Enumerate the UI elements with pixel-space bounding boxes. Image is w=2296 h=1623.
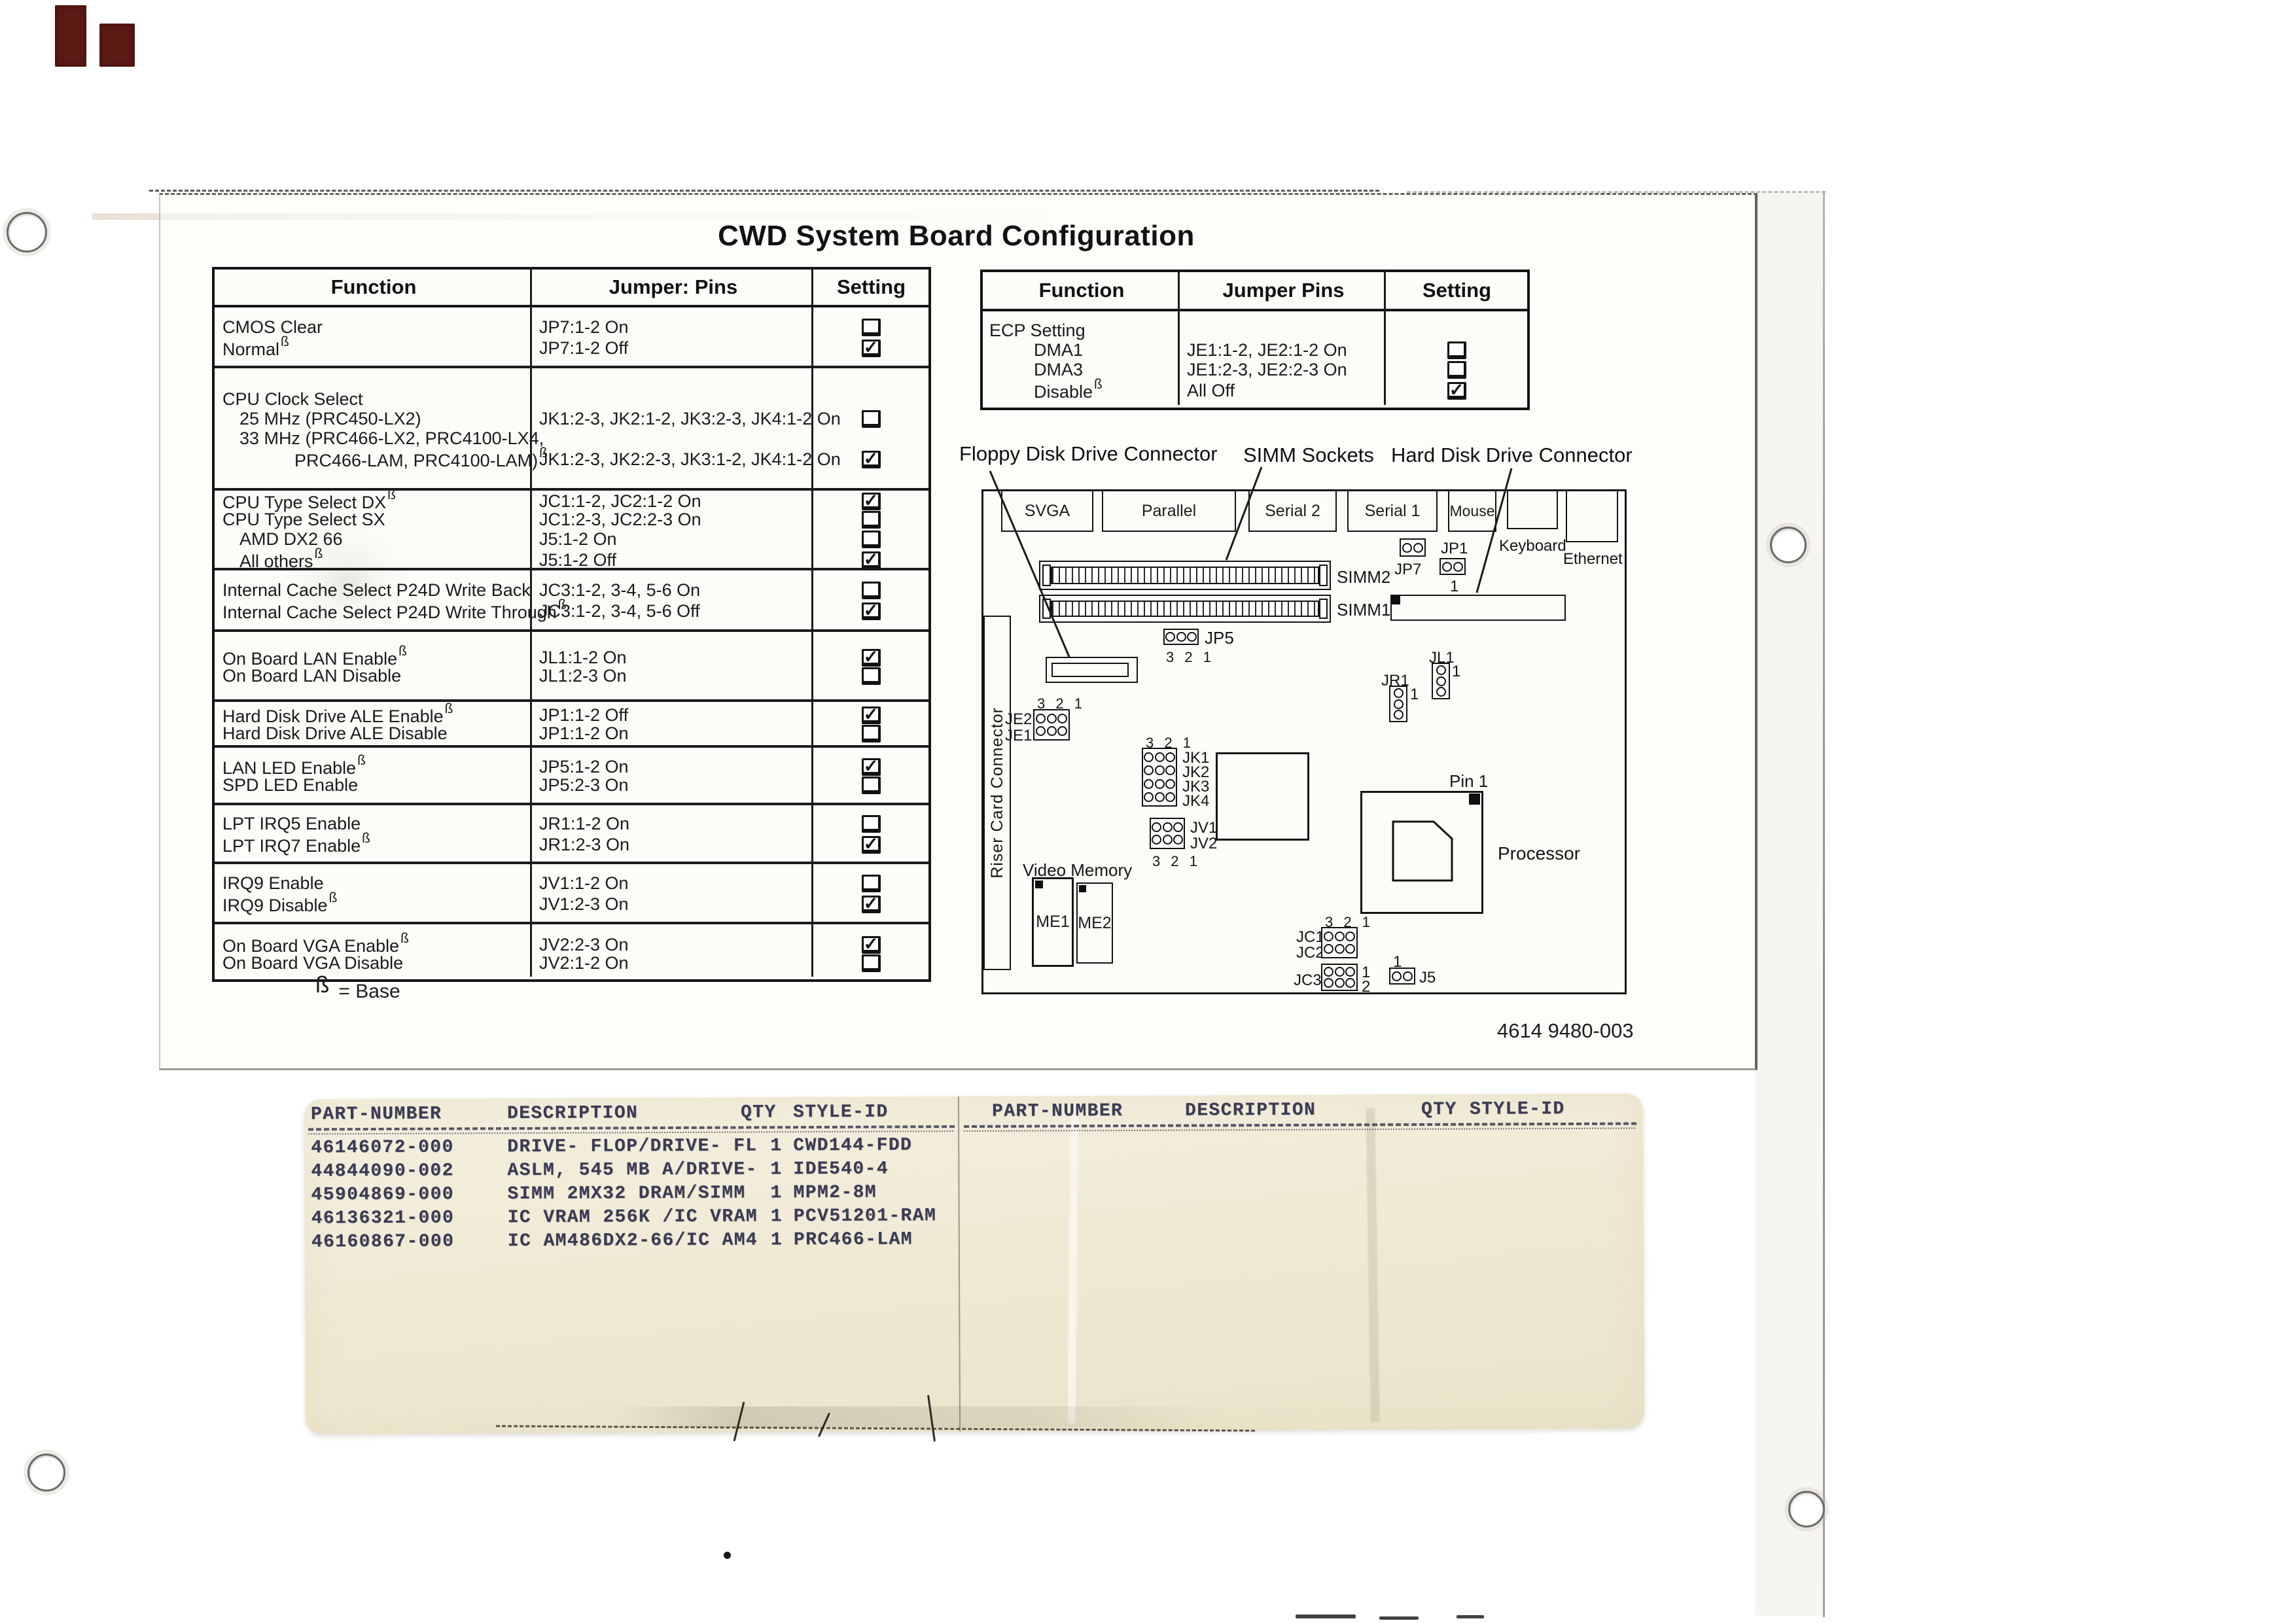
punch-hole (27, 1454, 65, 1492)
table-section: LPT IRQ5 EnableJR1:1-2 OnLPT IRQ7 Enable… (215, 805, 928, 864)
jumper-pins-value: JP5:2-3 On (533, 775, 814, 795)
header-qty: QTY (741, 1102, 777, 1123)
setting-cell: ✓ (814, 936, 928, 954)
setting-checkbox: ✓ (862, 707, 881, 724)
header-style-id: STYLE-ID (793, 1102, 889, 1123)
base-superscript: ß (400, 931, 409, 946)
jumper-pin (1345, 967, 1355, 977)
jumper-pins-value: JP1:1-2 On (533, 724, 814, 744)
jumper-table-main: Function Jumper: Pins Setting CMOS Clear… (212, 267, 931, 982)
base-superscript: ß (281, 334, 289, 349)
riser-card-connector-label: Riser Card Connector (988, 707, 1007, 879)
function-label: Disableß (983, 379, 1180, 402)
function-label: 33 MHz (PRC466-LX2, PRC4100-LX4, (215, 428, 533, 449)
table-section: CPU Type Select DXßJC1:1-2, JC2:1-2 On✓C… (215, 491, 928, 570)
jumper-pin (1152, 822, 1161, 832)
jumper-pin-row (1143, 779, 1176, 789)
function-label: LPT IRQ5 Enable (215, 814, 533, 834)
function-label: DMA3 (983, 360, 1180, 380)
setting-checkbox: ✓ (862, 451, 881, 468)
jumper-pin-row (1401, 543, 1424, 553)
table-section: LAN LED EnableßJP5:1-2 On✓SPD LED Enable… (215, 748, 928, 805)
punch-hole (7, 212, 47, 253)
system-board-diagram: SVGA Parallel Serial 2 Serial 1 Mouse Ke… (981, 489, 1627, 994)
setting-checkbox: ✓ (862, 551, 881, 569)
base-superscript: ß (387, 491, 396, 502)
punch-hole (1770, 527, 1807, 563)
style-id: IDE540-4 (793, 1159, 889, 1180)
description: DRIVE- FLOP/DRIVE- FL (507, 1136, 757, 1157)
sticker-wrinkle (1366, 1108, 1379, 1422)
jumper-pin-row (1151, 835, 1184, 845)
jumper-pins-value: J5:1-2 On (533, 529, 814, 550)
jumper-pin-row (1165, 632, 1197, 642)
jumper-pin (1436, 676, 1446, 686)
jumper-pin-row (1433, 676, 1449, 686)
table-section: ECP SettingDMA1JE1:1-2, JE2:1-2 OnDMA3JE… (983, 311, 1527, 408)
jumper-pins-value: JP7:1-2 Off (533, 338, 814, 358)
table-line: On Board VGA EnableßJV2:2-3 On✓ (215, 934, 928, 953)
sheet-right-strip (1755, 193, 1823, 1616)
setting-checkbox (1447, 361, 1466, 379)
jumper-pins-value: JC3:1-2, 3-4, 5-6 Off (533, 601, 814, 621)
port-keyboard-label: Keyboard (1499, 537, 1566, 555)
jumper-je1-label: JE1 (1005, 727, 1032, 745)
jumper-table-ecp: Function Jumper Pins Setting ECP Setting… (980, 270, 1530, 410)
table-section: CMOS ClearJP7:1-2 OnNormalßJP7:1-2 Off✓ (215, 307, 928, 368)
jumper-pin-row (1143, 792, 1176, 802)
riser-card-connector: Riser Card Connector (983, 616, 1011, 970)
parts-table-row: 44844090-002ASLM, 545 MB A/DRIVE-1IDE540… (311, 1159, 965, 1182)
table-line: On Board VGA DisableJV2:1-2 On (215, 953, 928, 973)
base-superscript: ß (398, 644, 407, 659)
base-superscript: ß (357, 753, 366, 768)
setting-checkbox (862, 815, 881, 833)
table-section: Internal Cache Select P24D Write BackJC3… (215, 570, 928, 632)
setting-checkbox: ✓ (862, 836, 881, 854)
jumper-pin (1036, 714, 1046, 724)
style-id: CWD144-FDD (793, 1135, 912, 1156)
setting-checkbox (862, 875, 881, 892)
jumper-pin (1324, 944, 1333, 954)
jumper-pin (1155, 765, 1165, 775)
function-label: Normalß (215, 337, 533, 360)
jumper-jk-block (1142, 748, 1177, 807)
parts-table-row: 45904869-000SIMM 2MX32 DRAM/SIMM1MPM2-8M (311, 1182, 965, 1206)
table-line: 25 MHz (PRC450-LX2)JK1:2-3, JK2:1-2, JK3… (215, 409, 928, 428)
jumper-pin (1036, 726, 1046, 736)
column-divider (530, 267, 532, 977)
me1-pin1-mark (1035, 881, 1043, 888)
floppy-connector-inner (1051, 663, 1129, 677)
port-ethernet-label: Ethernet (1563, 550, 1623, 568)
jc3-pin2: 2 (1362, 978, 1370, 996)
jumper-pin (1413, 543, 1423, 553)
qty: 1 (770, 1183, 782, 1203)
jumper-jp1 (1439, 558, 1466, 575)
table-body: ECP SettingDMA1JE1:1-2, JE2:1-2 OnDMA3JE… (983, 311, 1527, 408)
jumper-pin (1057, 726, 1067, 736)
jumper-j5-label: J5 (1419, 969, 1436, 987)
jumper-pin (1345, 944, 1355, 954)
base-superscript: ß (445, 702, 453, 716)
jumper-pin (1324, 932, 1333, 941)
jumper-jk4-label: JK4 (1182, 792, 1209, 811)
setting-cell (814, 815, 928, 833)
jumper-pin-row (1390, 688, 1406, 698)
function-label: Internal Cache Select P24D Write Through… (215, 600, 533, 623)
description: IC VRAM 256K /IC VRAM (508, 1206, 758, 1228)
part-number: 45904869-000 (311, 1184, 454, 1205)
legend-base-note: ß= Base (315, 977, 400, 1003)
jumper-pin (1442, 562, 1452, 572)
setting-checkbox: ✓ (1447, 382, 1466, 400)
jumper-jl1 (1432, 663, 1450, 699)
table-line: CMOS ClearJP7:1-2 On (215, 317, 928, 337)
legend-symbol: ß (315, 972, 329, 998)
setting-checkbox (1447, 341, 1466, 359)
port-parallel: Parallel (1102, 490, 1236, 532)
setting-cell (1386, 361, 1527, 379)
jumper-pins-value: JV1:1-2 On (533, 873, 814, 894)
qty: 1 (771, 1206, 783, 1227)
function-label: LPT IRQ7 Enableß (215, 833, 533, 856)
setting-checkbox: ✓ (862, 936, 881, 954)
jumper-pin (1324, 967, 1333, 977)
table-line: Hard Disk Drive ALE DisableJP1:1-2 On (215, 724, 928, 743)
jumper-j5 (1389, 968, 1415, 985)
header-rule (308, 1125, 955, 1130)
jp5-pin-numbers: 3 2 1 (1166, 649, 1214, 666)
sheet-top-edge (149, 190, 1379, 192)
function-label: All othersß (215, 549, 533, 570)
style-id: PRC466-LAM (794, 1229, 913, 1250)
me2-pin1-mark (1079, 885, 1086, 892)
function-label: IRQ9 Enable (215, 873, 533, 894)
jumper-pin-row (1322, 978, 1356, 988)
setting-checkbox: ✓ (862, 493, 881, 510)
jumper-pins-value: JC1:1-2, JC2:1-2 On (533, 491, 814, 512)
jumper-pin (1335, 932, 1345, 941)
port-serial2: Serial 2 (1248, 490, 1337, 532)
qty: 1 (770, 1159, 782, 1179)
callout-simm-sockets: SIMM Sockets (1243, 444, 1374, 467)
jumper-pin-row (1322, 967, 1356, 977)
col-header-setting: Setting (1386, 279, 1527, 302)
scan-edge-mark (1296, 1614, 1356, 1618)
table-section: IRQ9 EnableJV1:1-2 OnIRQ9 DisableßJV1:2-… (215, 864, 928, 924)
hdd-connector (1390, 595, 1566, 621)
jumper-pins-value: JL1:2-3 On (533, 666, 814, 686)
jumper-pin-row (1034, 714, 1069, 724)
jumper-pin (1152, 835, 1161, 845)
table-line: IRQ9 DisableßJV1:2-3 On✓ (215, 893, 928, 913)
jumper-pin-row (1441, 562, 1464, 572)
jumper-pin (1163, 822, 1173, 832)
jumper-pin-row (1433, 665, 1449, 675)
jumper-je2-label: JE2 (1005, 710, 1032, 729)
jumper-jp5 (1163, 629, 1199, 645)
slot-contacts (1051, 567, 1319, 584)
table-line: 33 MHz (PRC466-LX2, PRC4100-LX4, (215, 428, 928, 448)
setting-cell (814, 582, 928, 599)
jumper-pin (1187, 632, 1197, 642)
col-header-jumper-pins: Jumper Pins (1180, 279, 1386, 302)
slot-end-cap (1042, 599, 1051, 619)
base-superscript: ß (362, 831, 370, 846)
table-line: CPU Type Select SXJC1:2-3, JC2:2-3 On (215, 510, 928, 529)
parts-label-sticker: PART-NUMBER DESCRIPTION QTY STYLE-ID PAR… (304, 1094, 1644, 1435)
jumper-pin (1155, 752, 1165, 762)
setting-cell (814, 410, 928, 428)
jumper-pin (1165, 632, 1175, 642)
callout-hdd-connector: Hard Disk Drive Connector (1391, 444, 1633, 467)
scan-edge-mark (1457, 1615, 1484, 1618)
punch-hole (1788, 1491, 1825, 1527)
hdd-pin1-mark (1392, 596, 1400, 604)
jumper-jl1-pin1: 1 (1452, 663, 1460, 681)
part-number: 46146072-000 (311, 1137, 454, 1158)
jumper-pin (1155, 792, 1165, 802)
simm2-label: SIMM2 (1337, 567, 1390, 587)
simm1-label: SIMM1 (1337, 600, 1390, 620)
jumper-pins-value: JE1:2-3, JE2:2-3 On (1180, 360, 1386, 380)
table-line: On Board LAN EnableßJL1:1-2 On✓ (215, 646, 928, 666)
jumper-pins-value: JK1:2-3, JK2:1-2, JK3:2-3, JK4:1-2 On (533, 409, 814, 429)
jumper-pin (1163, 835, 1173, 845)
jumper-pin-row (1433, 687, 1449, 697)
jv-pin-numbers: 3 2 1 (1152, 853, 1201, 870)
jumper-pin (1057, 714, 1067, 724)
col-header-function: Function (215, 275, 533, 299)
jumper-pin-row (1151, 822, 1184, 832)
base-superscript: ß (539, 445, 548, 461)
scan-speck (724, 1552, 731, 1559)
jumper-pin (1144, 752, 1154, 762)
jumper-pin (1335, 967, 1345, 977)
jumper-pin (1165, 779, 1175, 789)
setting-cell (814, 954, 928, 972)
scan-red-mark (99, 24, 135, 67)
jumper-pin (1335, 944, 1345, 954)
parts-table-row: 46136321-000IC VRAM 256K /IC VRAM1PCV512… (311, 1206, 966, 1229)
table-line: DMA1JE1:1-2, JE2:1-2 On (983, 340, 1527, 360)
jumper-pin (1165, 765, 1175, 775)
function-label: CPU Type Select SX (215, 510, 533, 530)
jumper-pin (1394, 710, 1404, 720)
setting-cell: ✓ (814, 451, 928, 468)
jumper-pin (1176, 632, 1186, 642)
base-superscript: ß (329, 890, 338, 905)
table-line: DisableßAll Off✓ (983, 379, 1527, 399)
setting-cell: ✓ (814, 602, 928, 620)
function-label: ECP Setting (983, 321, 1180, 341)
jumper-pin-row (1143, 765, 1176, 775)
jumper-jv2-label: JV2 (1190, 835, 1217, 853)
jumper-pin-row (1322, 944, 1356, 954)
jumper-pin (1335, 978, 1345, 988)
jumper-pins-value: JR1:1-2 On (533, 814, 814, 834)
jumper-jp1-label: JP1 (1441, 540, 1468, 558)
jumper-pin (1436, 687, 1446, 697)
style-id: PCV51201-RAM (794, 1206, 937, 1227)
base-superscript: ß (558, 597, 567, 612)
part-number: 44844090-002 (311, 1161, 454, 1181)
jumper-pin (1144, 792, 1154, 802)
jumper-pins-value: JL1:1-2 On (533, 648, 814, 668)
table-line: LPT IRQ7 EnableßJR1:2-3 On✓ (215, 833, 928, 853)
table-line: Internal Cache Select P24D Write BackJC3… (215, 580, 928, 600)
setting-checkbox: ✓ (862, 602, 881, 620)
slot-end-cap (1319, 599, 1328, 619)
parts-table-row: 46160867-000IC AM486DX2-66/IC AM41PRC466… (311, 1229, 966, 1253)
function-label: On Board VGA Disable (215, 953, 533, 973)
table-line: LPT IRQ5 EnableJR1:1-2 On (215, 814, 928, 833)
table-body: CMOS ClearJP7:1-2 OnNormalßJP7:1-2 Off✓C… (215, 307, 928, 982)
base-superscript: ß (315, 546, 323, 561)
chip-unlabeled (1216, 752, 1309, 841)
table-line: LAN LED EnableßJP5:1-2 On✓ (215, 756, 928, 775)
processor-pin1-label: Pin 1 (1449, 771, 1488, 792)
description: IC AM486DX2-66/IC AM4 (508, 1230, 758, 1251)
function-label: SPD LED Enable (215, 775, 533, 795)
jumper-pins-value: JC3:1-2, 3-4, 5-6 On (533, 580, 814, 601)
description: ASLM, 545 MB A/DRIVE- (507, 1159, 757, 1181)
jumper-pins-value: JP7:1-2 On (533, 317, 814, 338)
jumper-jc3-label: JC3 (1294, 971, 1322, 990)
setting-cell: ✓ (814, 551, 928, 569)
jumper-pin-row (1390, 710, 1406, 720)
description: SIMM 2MX32 DRAM/SIMM (507, 1183, 745, 1205)
setting-checkbox (862, 410, 881, 428)
jumper-pins-value: All Off (1180, 381, 1386, 401)
legend-text: = Base (338, 981, 400, 1002)
column-divider (1178, 270, 1180, 405)
table-section: On Board LAN EnableßJL1:1-2 On✓On Board … (215, 632, 928, 702)
jumper-pin (1345, 932, 1355, 941)
jumper-pins-value: JV2:2-3 On (533, 935, 814, 955)
jumper-jc3 (1321, 964, 1358, 991)
jumper-pin-row (1322, 932, 1356, 941)
setting-cell: ✓ (1386, 382, 1527, 400)
header-rule (964, 1123, 1636, 1128)
port-keyboard-box (1507, 490, 1558, 529)
jumper-pin (1173, 822, 1183, 832)
jumper-pin (1165, 752, 1175, 762)
parts-rows: 46146072-000DRIVE- FLOP/DRIVE- FL1CWD144… (304, 1094, 1643, 1100)
jumper-pin (1453, 562, 1463, 572)
table-line: CPU Type Select DXßJC1:1-2, JC2:1-2 On✓ (215, 491, 928, 510)
header-style-id: STYLE-ID (1470, 1099, 1565, 1120)
vram-chip-me1: ME1 (1032, 877, 1074, 967)
setting-cell (814, 875, 928, 892)
jumper-jp7 (1400, 538, 1426, 557)
function-label: CPU Clock Select (215, 389, 533, 410)
setting-cell (814, 667, 928, 685)
function-label: PRC466-LAM, PRC4100-LAM)ß (215, 448, 533, 471)
part-number: 46160867-000 (311, 1231, 455, 1252)
column-divider (811, 267, 813, 977)
jumper-jp5-label: JP5 (1205, 628, 1234, 648)
table-line: All othersßJ5:1-2 Off✓ (215, 549, 928, 568)
sticker-wrinkle (1670, 1100, 1678, 1420)
function-label: DMA1 (983, 340, 1180, 360)
qty: 1 (771, 1230, 783, 1250)
jumper-pin (1403, 971, 1413, 981)
header-description: DESCRIPTION (507, 1103, 638, 1124)
simm2-slot (1039, 561, 1331, 590)
table-line: ECP Setting (983, 321, 1527, 340)
jumper-pins-value: JV1:2-3 On (533, 894, 814, 915)
setting-checkbox (862, 582, 881, 599)
jumper-jc2-label: JC2 (1296, 944, 1324, 962)
table-header-row: Function Jumper: Pins Setting (215, 270, 928, 307)
function-label: 25 MHz (PRC450-LX2) (215, 409, 533, 429)
scan-edge-mark (1379, 1616, 1419, 1620)
setting-cell (814, 319, 928, 336)
function-label: On Board LAN Disable (215, 666, 533, 686)
jumper-pins-value: JR1:2-3 On (533, 835, 814, 855)
col-header-jumper-pins: Jumper: Pins (533, 275, 814, 299)
slot-end-cap (1042, 565, 1051, 586)
jumper-pin-row (1143, 752, 1176, 762)
header-description: DESCRIPTION (1185, 1100, 1316, 1121)
jumper-pin (1165, 792, 1175, 802)
table-line: IRQ9 EnableJV1:1-2 On (215, 873, 928, 893)
vram-chip-me2: ME2 (1076, 882, 1113, 964)
header-part-number: PART-NUMBER (311, 1104, 442, 1125)
port-svga: SVGA (1001, 490, 1093, 532)
jumper-pin (1144, 765, 1154, 775)
table-line: SPD LED EnableJP5:2-3 On (215, 775, 928, 795)
setting-cell: ✓ (814, 896, 928, 913)
table-line: DMA3JE1:2-3, JE2:2-3 On (983, 360, 1527, 379)
setting-checkbox (862, 319, 881, 336)
function-label: CMOS Clear (215, 317, 533, 338)
jumper-pin (1155, 779, 1165, 789)
callout-floppy-connector: Floppy Disk Drive Connector (959, 442, 1218, 466)
setting-cell: ✓ (814, 707, 928, 724)
function-label: AMD DX2 66 (215, 529, 533, 550)
processor-label: Processor (1498, 843, 1580, 864)
table-line: NormalßJP7:1-2 Off✓ (215, 337, 928, 357)
table-header-row: Function Jumper Pins Setting (983, 272, 1527, 311)
setting-cell: ✓ (814, 649, 928, 667)
jumper-pins-value: JC1:2-3, JC2:2-3 On (533, 510, 814, 530)
setting-checkbox (862, 531, 881, 548)
port-serial1: Serial 1 (1347, 490, 1438, 532)
col-header-setting: Setting (814, 275, 928, 299)
jumper-pins-value: JP5:1-2 On (533, 757, 814, 777)
me2-label: ME2 (1078, 914, 1111, 933)
jumper-jv-block (1150, 818, 1185, 849)
sticker-wrinkle (1068, 1102, 1079, 1423)
setting-cell (814, 511, 928, 529)
col-header-function: Function (983, 279, 1180, 302)
jumper-pin (1392, 971, 1402, 981)
column-divider (1384, 270, 1386, 405)
setting-checkbox: ✓ (862, 340, 881, 357)
function-label: Internal Cache Select P24D Write Back (215, 580, 533, 601)
setting-cell (1386, 341, 1527, 359)
jumper-pins-value: JP1:1-2 Off (533, 705, 814, 725)
jumper-jp7-label: JP7 (1394, 561, 1421, 579)
jumper-pin (1047, 726, 1057, 736)
table-line: CPU Clock Select (215, 389, 928, 409)
setting-cell: ✓ (814, 340, 928, 357)
jumper-pin (1173, 835, 1183, 845)
header-part-number: PART-NUMBER (992, 1101, 1123, 1122)
